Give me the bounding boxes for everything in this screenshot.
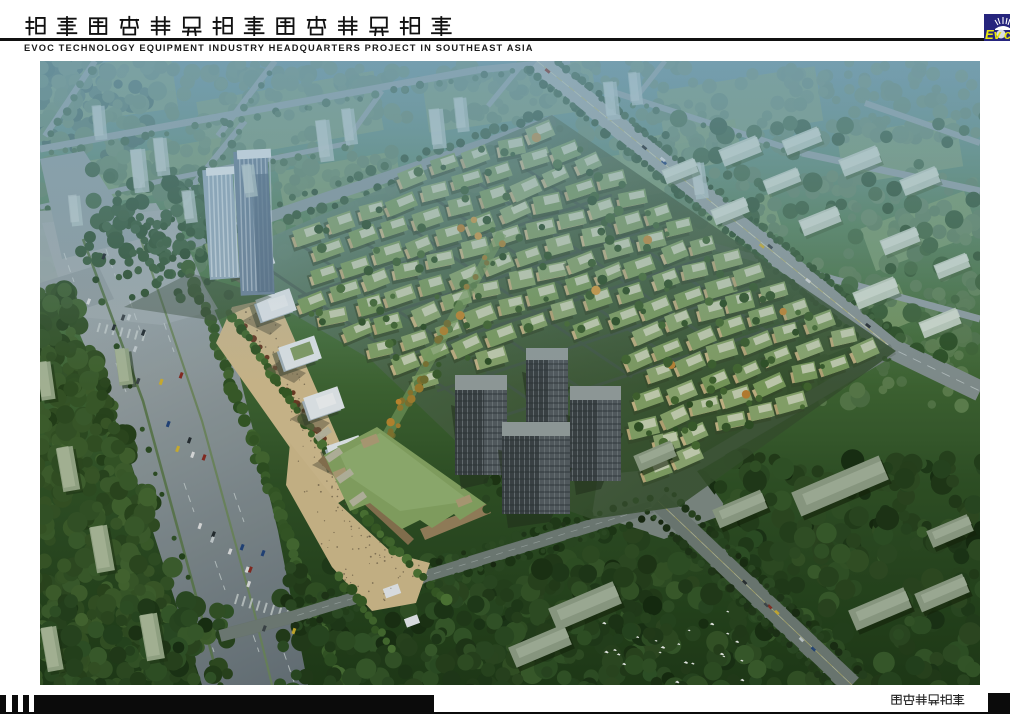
svg-text:Ev: Ev [985, 27, 1002, 41]
svg-text:c: c [1004, 27, 1010, 41]
